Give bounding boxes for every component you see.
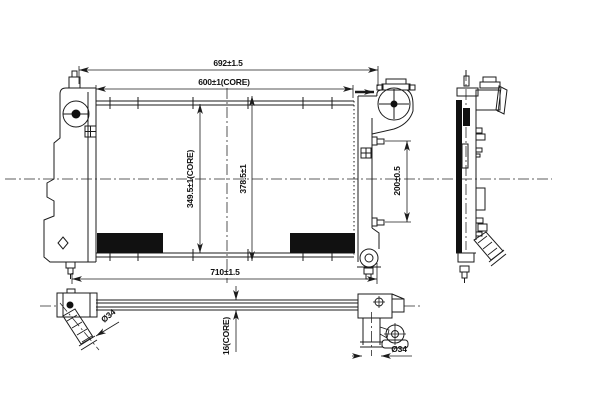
dim-pin-spacing: 200±0.5 bbox=[385, 141, 411, 222]
dim-overall-length-label: 710±1.5 bbox=[210, 267, 240, 277]
mounting-pin-upper-right bbox=[372, 137, 384, 145]
core-edge-band bbox=[456, 100, 462, 253]
drain-plug-left bbox=[66, 262, 75, 279]
technical-drawing-page: 692±1.5 600±1(CORE) 349.5±1(CORE) 378.5±… bbox=[0, 0, 600, 400]
bracket-hole bbox=[58, 237, 68, 249]
cap-side bbox=[476, 77, 507, 114]
dim-overall-length: 710±1.5 bbox=[72, 263, 377, 284]
mounting-pin-side bbox=[464, 76, 469, 86]
dim-core-width: 600±1(CORE) bbox=[96, 77, 353, 98]
dim-overall-height: 378.5±1 bbox=[238, 96, 252, 261]
dimensions: 692±1.5 600±1(CORE) 349.5±1(CORE) 378.5±… bbox=[72, 58, 412, 356]
dim-overall-width-label: 692±1.5 bbox=[213, 58, 243, 68]
mounting-pin-top bbox=[72, 71, 77, 77]
dim-inlet-diameter-label: Ø34 bbox=[99, 307, 118, 325]
left-fitting bbox=[85, 126, 96, 137]
dim-core-thickness-label: 16(CORE) bbox=[221, 317, 231, 355]
mounting-pin-lower-right bbox=[372, 218, 384, 226]
dim-inlet-diameter: Ø34 bbox=[96, 307, 119, 336]
outlet-pipe-side bbox=[474, 232, 506, 266]
dim-core-width-label: 600±1(CORE) bbox=[198, 77, 250, 87]
dim-core-height: 349.5±1(CORE) bbox=[185, 104, 200, 253]
core-edge-bar bbox=[96, 300, 358, 310]
bottom-left-tank bbox=[57, 289, 99, 350]
dim-outlet-diameter-label: Ø34 bbox=[391, 344, 407, 354]
radiator-drawing: 692±1.5 600±1(CORE) 349.5±1(CORE) 378.5±… bbox=[0, 0, 600, 400]
left-tank bbox=[44, 71, 96, 279]
inlet-pipe-bottom bbox=[63, 309, 97, 350]
dim-core-height-label: 349.5±1(CORE) bbox=[185, 149, 195, 208]
dim-core-thickness: 16(CORE) bbox=[221, 286, 236, 355]
side-view bbox=[456, 70, 507, 283]
side-bracket bbox=[476, 188, 485, 210]
drain-plug-side bbox=[460, 266, 469, 283]
core-seal-right bbox=[290, 233, 355, 253]
dim-pin-spacing-label: 200±0.5 bbox=[392, 166, 402, 196]
filler-neck bbox=[378, 88, 410, 120]
dim-overall-height-label: 378.5±1 bbox=[238, 164, 248, 194]
front-view bbox=[5, 71, 552, 283]
right-fitting bbox=[361, 148, 371, 158]
core-seal-left bbox=[97, 233, 163, 253]
